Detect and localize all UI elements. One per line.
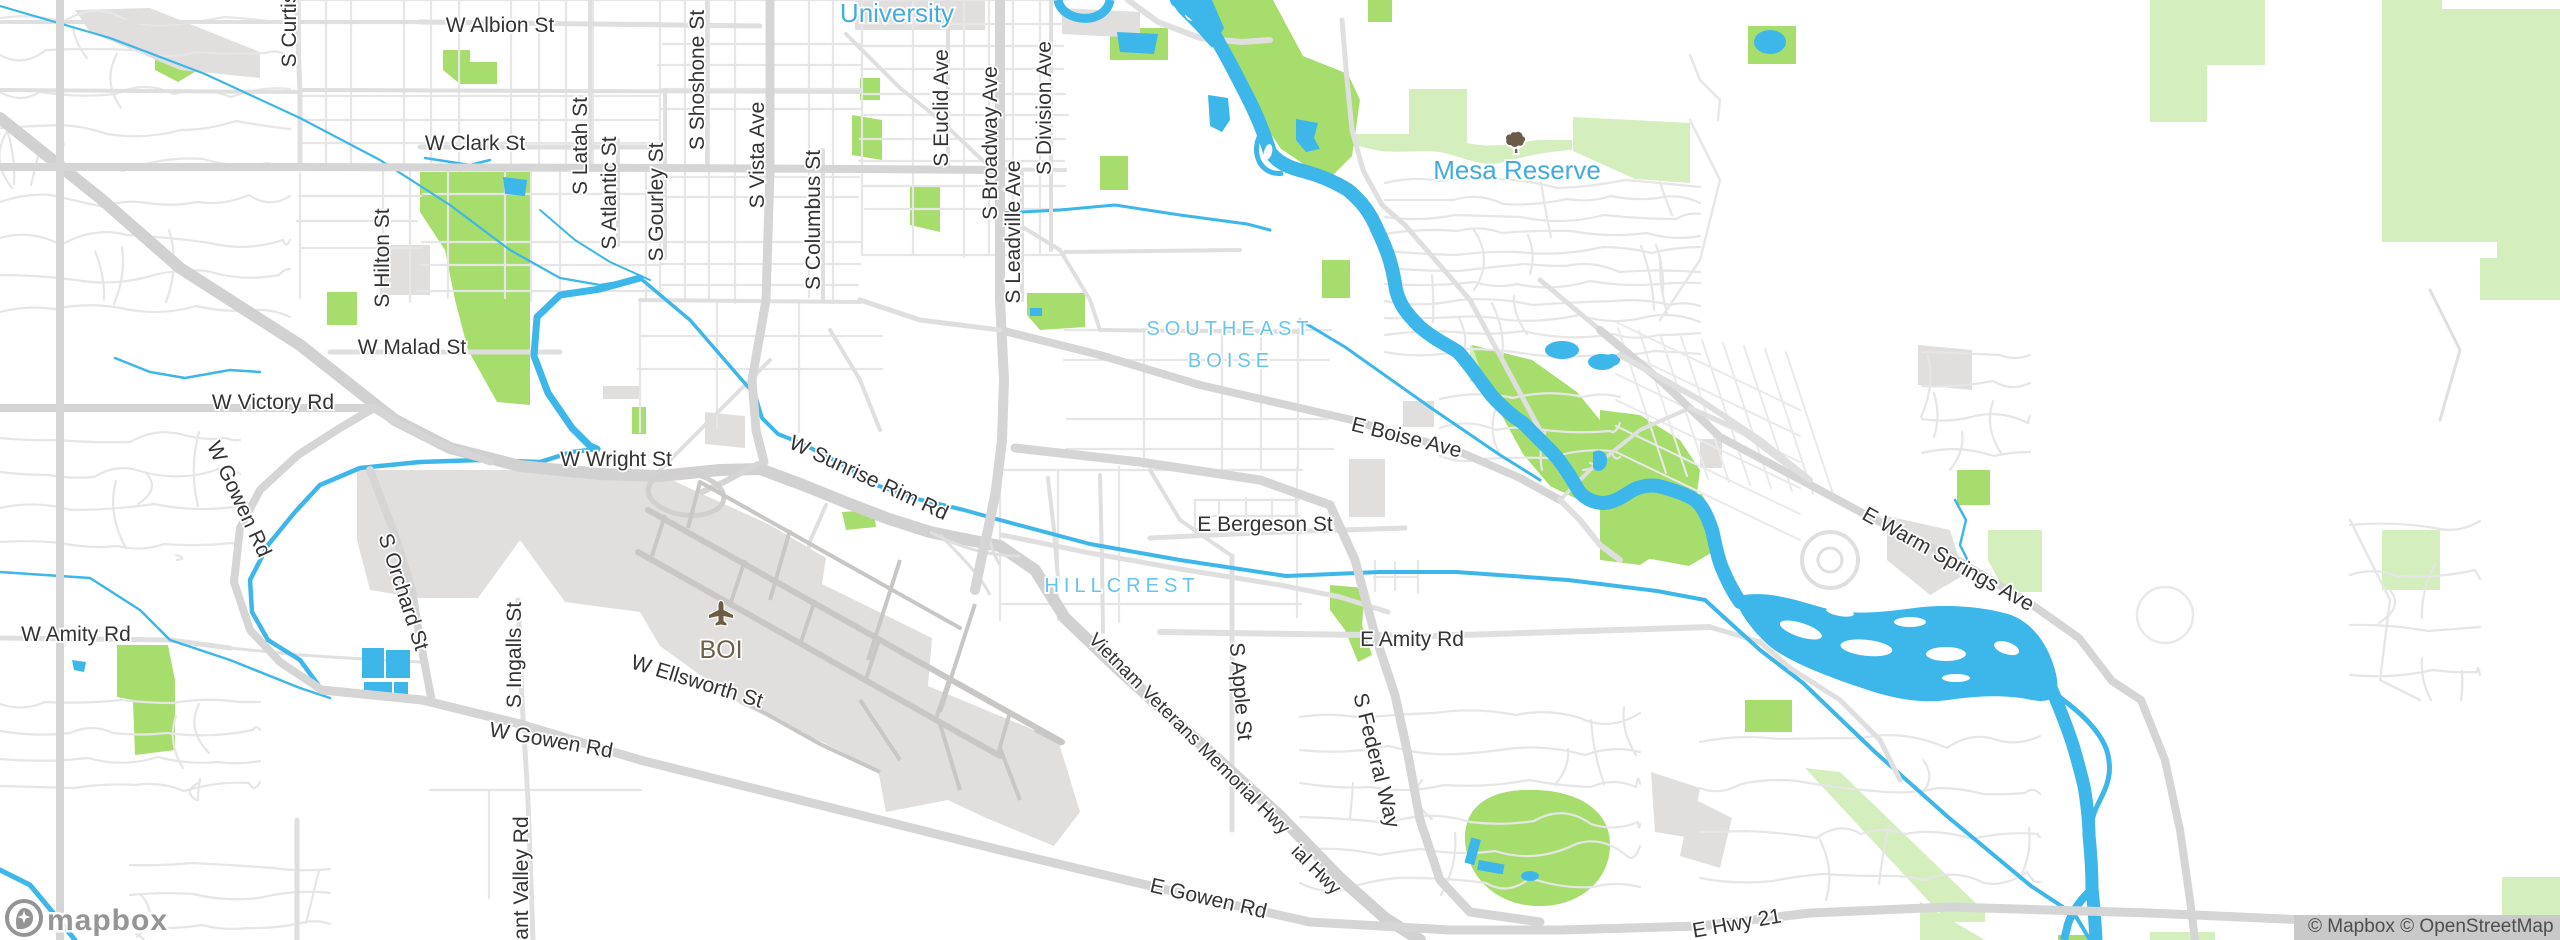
- svg-text:Mesa Reserve: Mesa Reserve: [1433, 155, 1601, 185]
- svg-text:E Bergeson St: E Bergeson St: [1197, 513, 1333, 536]
- svg-text:W Wright St: W Wright St: [560, 448, 672, 471]
- svg-text:S Ingalls St: S Ingalls St: [503, 602, 526, 708]
- svg-text:W Clark St: W Clark St: [425, 132, 526, 155]
- svg-text:S Hilton St: S Hilton St: [371, 208, 394, 307]
- svg-text:S Latah St: S Latah St: [569, 97, 592, 195]
- svg-text:S Euclid Ave: S Euclid Ave: [930, 49, 953, 167]
- svg-text:W Victory Rd: W Victory Rd: [212, 391, 334, 414]
- svg-text:mapbox: mapbox: [47, 904, 168, 937]
- svg-text:S Gourley St: S Gourley St: [645, 142, 668, 261]
- svg-text:S Broadway Ave: S Broadway Ave: [979, 66, 1002, 220]
- svg-text:S Shoshone St: S Shoshone St: [686, 10, 709, 150]
- svg-text:E Amity Rd: E Amity Rd: [1360, 628, 1464, 651]
- svg-text:BOISE: BOISE: [1188, 350, 1274, 372]
- svg-text:ant Valley Rd: ant Valley Rd: [510, 816, 533, 939]
- svg-text:BOI: BOI: [699, 636, 742, 664]
- svg-text:University: University: [840, 0, 954, 28]
- svg-text:© Mapbox © OpenStreetMap: © Mapbox © OpenStreetMap: [2308, 916, 2554, 937]
- svg-text:S Vista Ave: S Vista Ave: [746, 102, 769, 209]
- svg-text:W Malad St: W Malad St: [358, 336, 467, 359]
- svg-text:W Amity Rd: W Amity Rd: [21, 623, 131, 646]
- svg-text:S Leadville Ave: S Leadville Ave: [1002, 160, 1025, 303]
- svg-text:S Curtis: S Curtis: [278, 0, 301, 67]
- svg-text:SOUTHEAST: SOUTHEAST: [1146, 318, 1313, 340]
- svg-text:S Division Ave: S Division Ave: [1033, 41, 1056, 175]
- svg-text:S Columbus St: S Columbus St: [802, 150, 825, 290]
- svg-text:W Albion St: W Albion St: [446, 14, 555, 37]
- svg-text:S Atlantic St: S Atlantic St: [598, 136, 621, 249]
- svg-text:HILLCREST: HILLCREST: [1044, 575, 1199, 597]
